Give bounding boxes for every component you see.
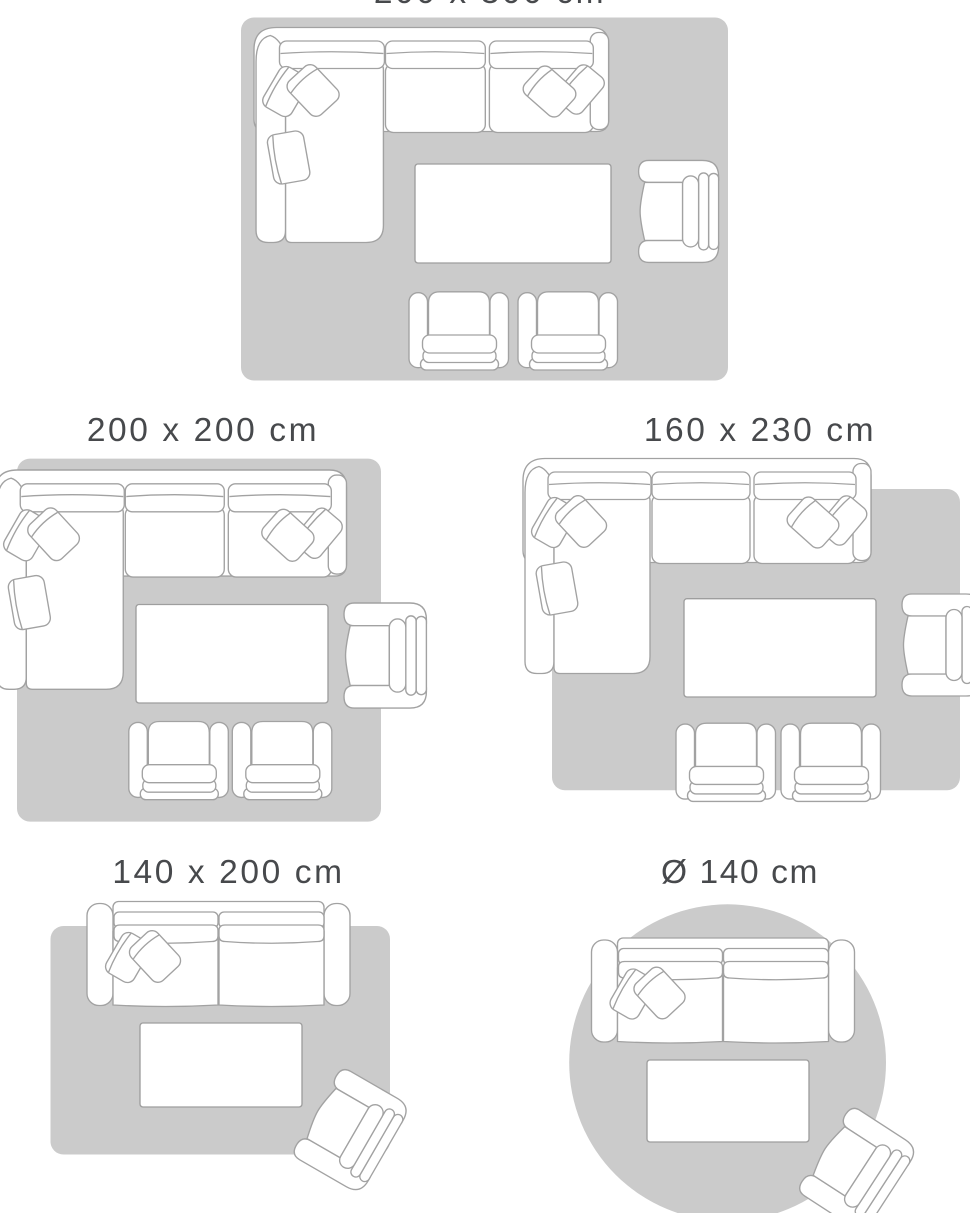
svg-text:200 x 200 cm: 200 x 200 cm bbox=[87, 412, 319, 449]
svg-text:160 x 230 cm: 160 x 230 cm bbox=[644, 412, 876, 449]
svg-text:200 x 300 cm: 200 x 300 cm bbox=[374, 0, 606, 11]
svg-text:Ø 140 cm: Ø 140 cm bbox=[661, 854, 819, 891]
svg-text:140 x 200 cm: 140 x 200 cm bbox=[112, 854, 344, 891]
